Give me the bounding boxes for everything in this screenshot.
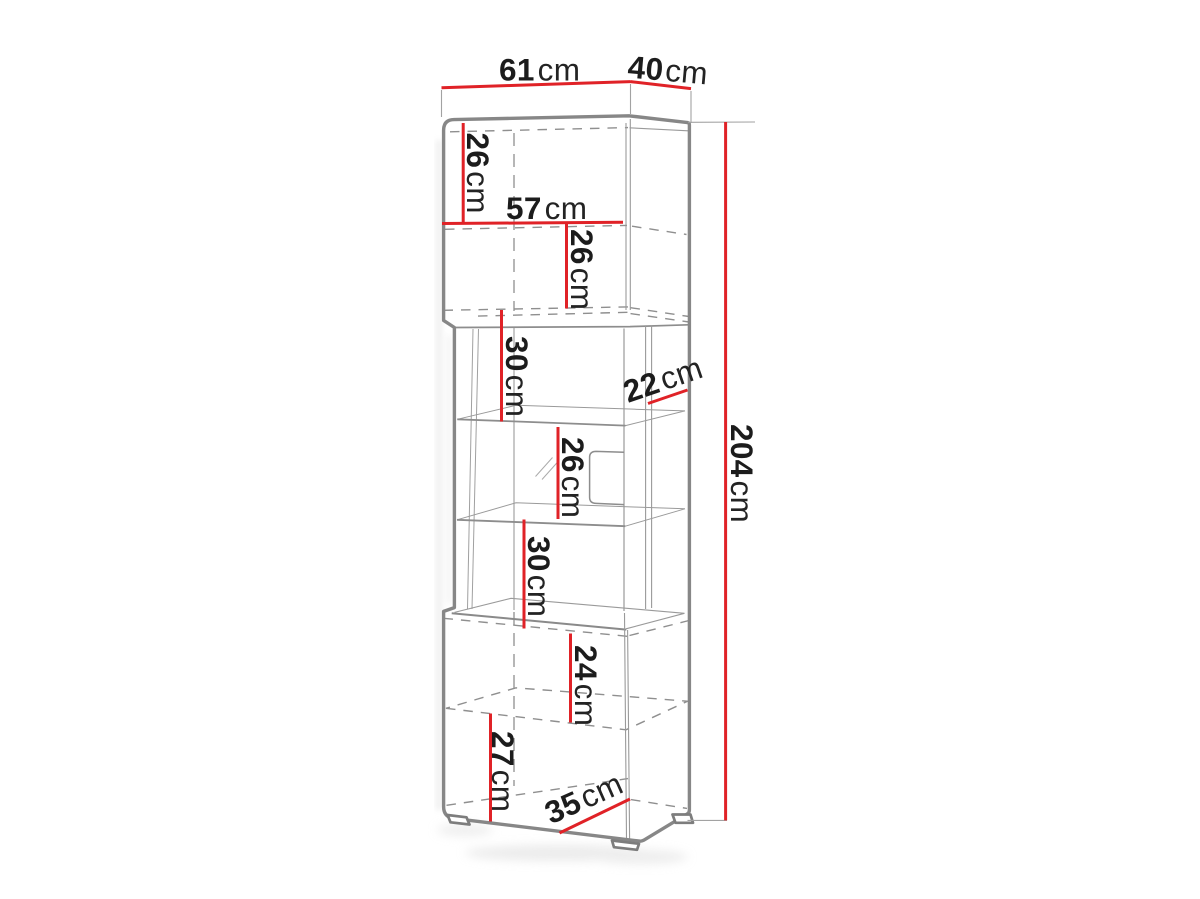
svg-text:30cm: 30cm — [521, 536, 557, 617]
svg-text:30cm: 30cm — [499, 336, 535, 417]
svg-text:26cm: 26cm — [460, 133, 496, 214]
svg-text:27cm: 27cm — [485, 731, 521, 812]
svg-text:57cm: 57cm — [506, 190, 587, 226]
svg-text:22cm: 22cm — [619, 349, 708, 409]
svg-text:40cm: 40cm — [626, 49, 709, 92]
svg-text:24cm: 24cm — [568, 645, 604, 726]
svg-text:204cm: 204cm — [724, 424, 760, 523]
svg-text:61cm: 61cm — [499, 52, 580, 88]
svg-text:26cm: 26cm — [555, 437, 591, 518]
svg-text:26cm: 26cm — [564, 229, 600, 310]
